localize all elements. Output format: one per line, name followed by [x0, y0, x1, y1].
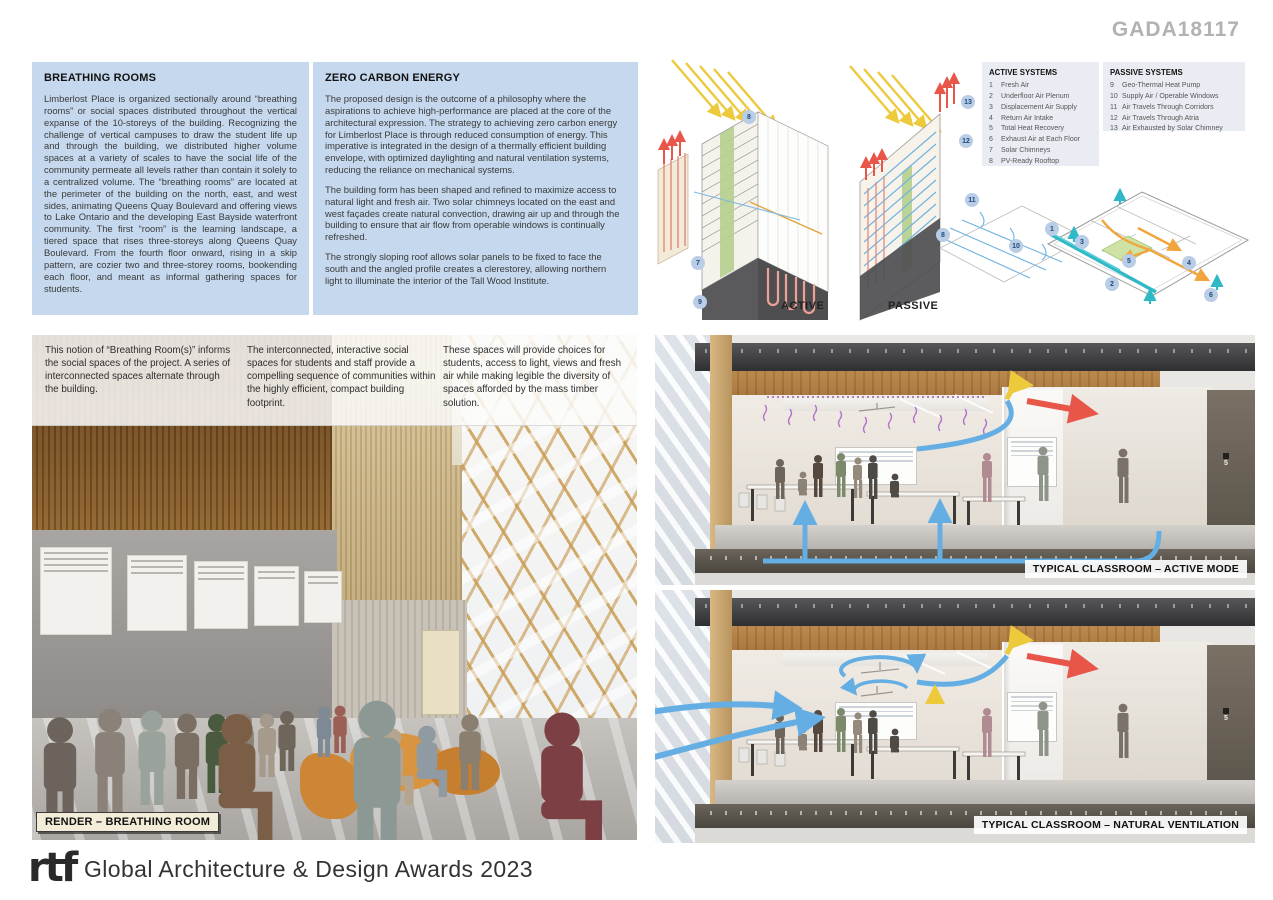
number-badge: 5	[1122, 254, 1136, 268]
zero-carbon-title: ZERO CARBON ENERGY	[325, 72, 626, 84]
number-badge: 3	[1075, 235, 1089, 249]
number-badge: 2	[1105, 277, 1119, 291]
render-breathing-room-image: This notion of “Breathing Room(s)” infor…	[32, 335, 637, 840]
room-number-sign: 5	[1221, 453, 1231, 468]
number-badge: 13	[961, 95, 975, 109]
number-badge: 7	[691, 256, 705, 270]
light-fixtures	[905, 652, 995, 674]
ceiling-fan	[861, 662, 899, 696]
number-badge: 8	[936, 228, 950, 242]
room-number-sign: 5	[1221, 708, 1231, 723]
sun-rays-passive	[850, 66, 940, 131]
board-code: GADA18117	[1112, 18, 1240, 42]
airflow-annotations	[655, 335, 1255, 585]
active-diagram-label: ACTIVE	[781, 300, 824, 312]
zero-carbon-panel: ZERO CARBON ENERGY The proposed design i…	[313, 62, 638, 315]
airflow-annotations	[655, 590, 1255, 843]
active-building-diagram	[658, 112, 828, 320]
breathing-rooms-body: Limberlost Place is organized sectionall…	[44, 93, 297, 294]
number-badge: 4	[1182, 256, 1196, 270]
breathing-rooms-title: BREATHING ROOMS	[44, 72, 297, 84]
awards-title: Global Architecture & Design Awards 2023	[84, 856, 533, 883]
overlay-column-1: This notion of “Breathing Room(s)” infor…	[45, 344, 233, 397]
classroom-active-image: 5 TYPICAL CLASSROOM – ACTIVE MODE	[655, 335, 1255, 585]
passive-diagram-label: PASSIVE	[888, 300, 938, 312]
zero-carbon-paragraph: The proposed design is the outcome of a …	[325, 93, 626, 176]
presentation-board: GADA18117 BREATHING ROOMS Limberlost Pla…	[0, 0, 1273, 900]
airflow-arrow-yellow	[1007, 385, 1029, 399]
number-badge: 9	[693, 295, 707, 309]
overlay-column-2: The interconnected, interactive social s…	[247, 344, 442, 410]
classroom-natural-image: 5 TYPICAL CLASSROOM – NATURAL VENTILATIO…	[655, 590, 1255, 843]
render-caption: RENDER – BREATHING ROOM	[36, 812, 219, 832]
airflow-arrow-yellow	[1007, 640, 1029, 654]
axonometric-diagrams	[650, 52, 1260, 322]
breathing-rooms-panel: BREATHING ROOMS Limberlost Place is orga…	[32, 62, 309, 315]
number-badge: 1	[1045, 222, 1059, 236]
number-badge: 12	[959, 134, 973, 148]
overlay-column-3: These spaces will provide choices for st…	[443, 344, 628, 410]
classroom-natural-caption: TYPICAL CLASSROOM – NATURAL VENTILATION	[974, 816, 1247, 834]
number-badge: 11	[965, 193, 979, 207]
airflow-arrow-red	[1027, 401, 1093, 413]
light-fixtures	[900, 395, 993, 417]
zero-carbon-paragraph: The building form has been shaped and re…	[325, 184, 626, 243]
energy-diagrams: ACTIVE PASSIVE 879131211810135246	[650, 52, 1260, 322]
number-badge: 8	[742, 110, 756, 124]
classroom-active-caption: TYPICAL CLASSROOM – ACTIVE MODE	[1025, 560, 1247, 578]
rtf-logo: rtf	[28, 845, 75, 891]
number-badge: 10	[1009, 239, 1023, 253]
zero-carbon-paragraph: The strongly sloping roof allows solar p…	[325, 251, 626, 287]
render-text-overlay: This notion of “Breathing Room(s)” infor…	[32, 335, 637, 426]
airflow-arrow-red	[1027, 656, 1093, 668]
ceiling-fan	[859, 403, 895, 411]
number-badge: 6	[1204, 288, 1218, 302]
